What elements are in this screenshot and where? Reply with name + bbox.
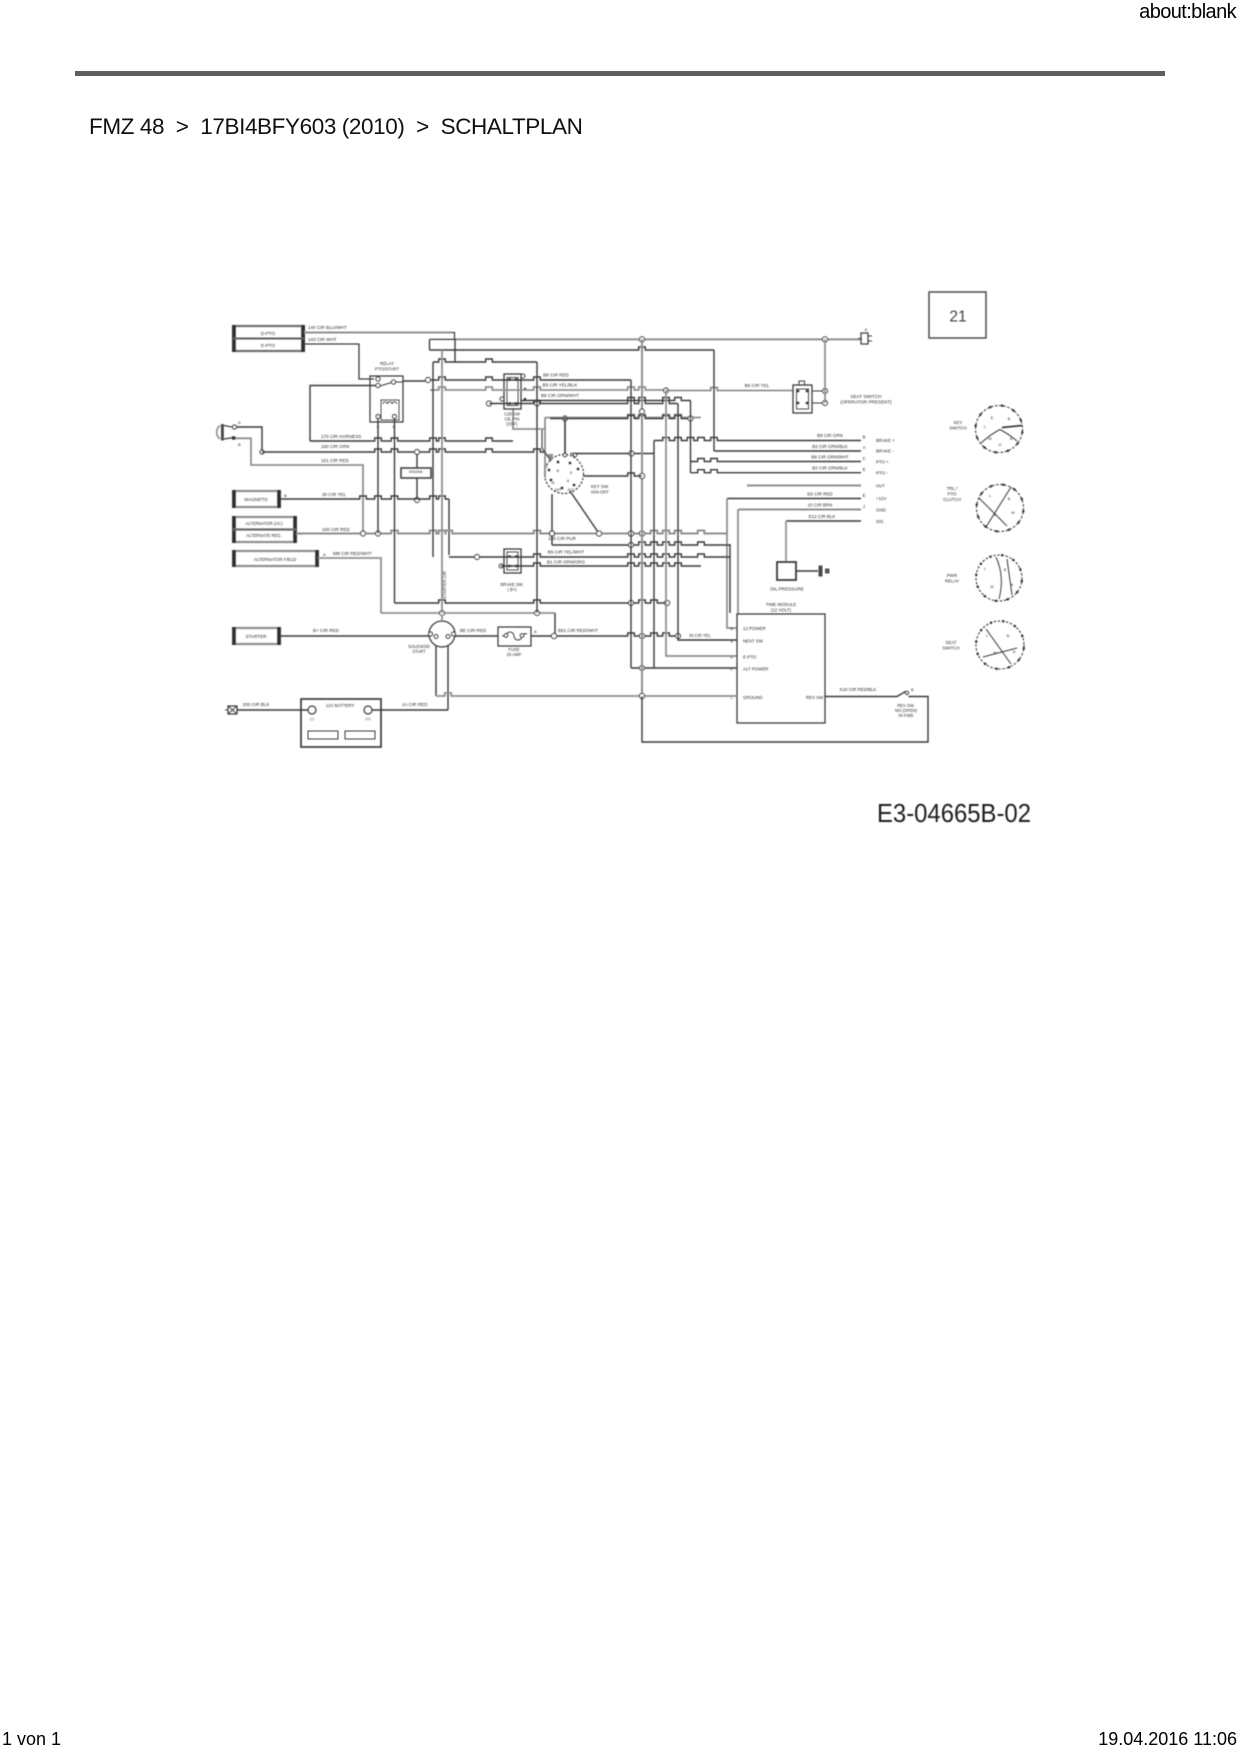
svg-text:A: A bbox=[865, 327, 868, 332]
svg-text:A: A bbox=[730, 639, 733, 644]
svg-text:(12 VOLT): (12 VOLT) bbox=[771, 608, 792, 613]
svg-text:D-PTO: D-PTO bbox=[261, 331, 276, 336]
svg-text:PTO -: PTO - bbox=[876, 471, 888, 476]
svg-text:A: A bbox=[1011, 583, 1014, 587]
svg-text:ALTERNATOR (AC): ALTERNATOR (AC) bbox=[245, 521, 283, 526]
svg-text:30 CIR YEL: 30 CIR YEL bbox=[322, 492, 347, 497]
svg-text:L: L bbox=[984, 425, 986, 429]
svg-text:A: A bbox=[1013, 650, 1016, 654]
svg-text:B51 CIR RED/WHT: B51 CIR RED/WHT bbox=[558, 628, 598, 633]
svg-text:OFF: OFF bbox=[555, 488, 562, 492]
svg-text:B+ CIR RED: B+ CIR RED bbox=[313, 628, 340, 633]
svg-text:B: B bbox=[557, 469, 560, 473]
svg-text:S: S bbox=[570, 471, 573, 475]
svg-text:B2 CIR GRN/BLK: B2 CIR GRN/BLK bbox=[812, 444, 848, 449]
svg-text:161 CIR RED: 161 CIR RED bbox=[321, 458, 350, 463]
svg-text:M: M bbox=[990, 585, 993, 589]
svg-text:BE CIR RED: BE CIR RED bbox=[460, 628, 487, 633]
svg-text:12 POWER: 12 POWER bbox=[743, 626, 766, 631]
svg-text:J: J bbox=[863, 504, 865, 509]
svg-text:E12 CIR BLK: E12 CIR BLK bbox=[809, 514, 836, 519]
svg-text:140 CIR BLU/WHT: 140 CIR BLU/WHT bbox=[308, 325, 347, 330]
svg-text:D: D bbox=[730, 655, 733, 660]
svg-text:B8 CIR GRN: B8 CIR GRN bbox=[817, 433, 843, 438]
svg-text:B: B bbox=[863, 435, 866, 440]
svg-text:10 CIR BRN: 10 CIR BRN bbox=[808, 503, 833, 508]
svg-text:PWR: PWR bbox=[947, 573, 957, 578]
svg-text:C: C bbox=[730, 667, 733, 672]
svg-text:NEXT SW: NEXT SW bbox=[743, 639, 764, 644]
svg-text:RELAY: RELAY bbox=[380, 361, 394, 366]
svg-text:E-PTO: E-PTO bbox=[743, 655, 757, 660]
svg-text:12V BATTERY: 12V BATTERY bbox=[326, 703, 355, 708]
svg-text:B: B bbox=[730, 626, 733, 631]
svg-text:B8 CIR GRN/WHT: B8 CIR GRN/WHT bbox=[541, 393, 579, 398]
svg-text:A: A bbox=[994, 513, 997, 517]
svg-text:A: A bbox=[238, 420, 241, 425]
svg-text:SEAT: SEAT bbox=[945, 640, 956, 645]
svg-text:ACC: ACC bbox=[568, 488, 576, 492]
svg-text:B: B bbox=[1007, 634, 1010, 638]
svg-text:GROUND: GROUND bbox=[743, 695, 763, 700]
svg-text:SWITCH: SWITCH bbox=[942, 646, 959, 651]
svg-text:HVT: HVT bbox=[876, 484, 885, 489]
svg-text:K10 CIR RED/BLK: K10 CIR RED/BLK bbox=[840, 687, 877, 692]
svg-text:START: START bbox=[412, 649, 426, 654]
svg-text:L: L bbox=[986, 634, 988, 638]
svg-text:E: E bbox=[863, 467, 866, 472]
svg-text:OIL PRESSURE: OIL PRESSURE bbox=[770, 587, 804, 592]
svg-text:B5 CIR YEL/WHT: B5 CIR YEL/WHT bbox=[548, 550, 585, 555]
svg-text:PTO: PTO bbox=[948, 492, 958, 497]
svg-text:PTO +: PTO + bbox=[876, 460, 889, 465]
svg-text:IN CIR YEL: IN CIR YEL bbox=[689, 633, 711, 638]
svg-text:B6 CIR YEL: B6 CIR YEL bbox=[745, 383, 770, 388]
svg-text:CLUTCH: CLUTCH bbox=[943, 497, 961, 502]
svg-text:200 CIR BLK: 200 CIR BLK bbox=[243, 702, 271, 707]
svg-text:(OPERATOR PRESENT): (OPERATOR PRESENT) bbox=[840, 400, 892, 405]
svg-text:( B+): ( B+) bbox=[507, 587, 517, 592]
svg-text:KEY: KEY bbox=[954, 420, 963, 425]
svg-text:IGN-OFF: IGN-OFF bbox=[591, 490, 609, 495]
svg-text:SWITCH: SWITCH bbox=[949, 426, 966, 431]
svg-text:21: 21 bbox=[949, 309, 966, 326]
svg-text:B: B bbox=[284, 493, 287, 498]
svg-text:A: A bbox=[323, 552, 326, 557]
svg-text:M: M bbox=[552, 481, 555, 485]
svg-text:B: B bbox=[1004, 568, 1007, 572]
svg-text:C: C bbox=[862, 456, 865, 461]
svg-text:A: A bbox=[1010, 437, 1013, 441]
svg-text:ALTERNATOR FIELD: ALTERNATOR FIELD bbox=[254, 557, 296, 562]
svg-text:TRL /: TRL / bbox=[947, 486, 958, 491]
svg-text:B: B bbox=[238, 442, 241, 447]
svg-text:+12V: +12V bbox=[876, 496, 886, 501]
svg-text:A: A bbox=[863, 445, 866, 450]
svg-text:20 AMP: 20 AMP bbox=[507, 652, 522, 657]
svg-text:B: B bbox=[911, 687, 914, 692]
svg-text:B1 CIR GRN/ORG: B1 CIR GRN/ORG bbox=[547, 560, 585, 565]
svg-text:E: E bbox=[991, 416, 994, 420]
svg-text:170 CIR HARNESS: 170 CIR HARNESS bbox=[321, 434, 361, 439]
svg-text:L: L bbox=[984, 567, 986, 571]
svg-text:MAGNETO: MAGNETO bbox=[244, 497, 268, 502]
svg-text:L: L bbox=[546, 464, 548, 468]
svg-text:B: B bbox=[1008, 497, 1011, 501]
svg-text:B8 CIR RED: B8 CIR RED bbox=[543, 373, 569, 378]
svg-text:(OFF): (OFF) bbox=[506, 422, 518, 427]
svg-text:M: M bbox=[993, 651, 996, 655]
svg-text:(-): (-) bbox=[310, 717, 315, 721]
svg-text:E-PTO: E-PTO bbox=[261, 343, 275, 348]
svg-text:U: U bbox=[999, 443, 1002, 447]
svg-text:ALT POWER: ALT POWER bbox=[743, 667, 768, 672]
svg-text:PTO/START: PTO/START bbox=[375, 367, 399, 372]
svg-text:1A CIR RED: 1A CIR RED bbox=[402, 702, 428, 707]
svg-text:E3-04665B-02: E3-04665B-02 bbox=[877, 798, 1031, 828]
svg-text:B8 CIR GRN/WHT: B8 CIR GRN/WHT bbox=[811, 455, 849, 460]
svg-text:GND: GND bbox=[876, 508, 886, 513]
svg-text:A: A bbox=[567, 479, 570, 483]
svg-text:ALTERNATE REG.: ALTERNATE REG. bbox=[246, 533, 281, 538]
svg-text:SIG: SIG bbox=[876, 519, 884, 524]
svg-text:E: E bbox=[863, 493, 866, 498]
svg-text:IN FWD: IN FWD bbox=[899, 713, 914, 718]
svg-text:100 CIR RED: 100 CIR RED bbox=[322, 527, 351, 532]
svg-text:A: A bbox=[534, 629, 537, 634]
svg-text:SEAT SWITCH: SEAT SWITCH bbox=[851, 394, 882, 399]
svg-text:RELAY: RELAY bbox=[945, 579, 959, 584]
svg-text:BRAKE -: BRAKE - bbox=[876, 449, 894, 454]
svg-text:B5 CIR YEL/BLK: B5 CIR YEL/BLK bbox=[543, 383, 579, 388]
svg-text:STARTER: STARTER bbox=[245, 634, 267, 639]
svg-text:160 CIR GRN: 160 CIR GRN bbox=[321, 444, 349, 449]
svg-text:L: L bbox=[989, 494, 991, 498]
svg-text:BRAKE +: BRAKE + bbox=[876, 438, 895, 443]
svg-text:MB CIR RED/WHT: MB CIR RED/WHT bbox=[333, 551, 372, 556]
svg-text:KEY SW.: KEY SW. bbox=[591, 484, 609, 489]
svg-text:143 CIR WHT: 143 CIR WHT bbox=[308, 337, 337, 342]
svg-text:ENGINE: ENGINE bbox=[409, 470, 423, 474]
svg-text:E6 CIR RED: E6 CIR RED bbox=[807, 492, 833, 497]
svg-text:B: B bbox=[1008, 417, 1011, 421]
svg-text:B2 CIR GRN/BLK: B2 CIR GRN/BLK bbox=[812, 466, 848, 471]
svg-text:TIME MODULE: TIME MODULE bbox=[766, 602, 797, 607]
svg-text:M: M bbox=[988, 437, 991, 441]
svg-text:(+): (+) bbox=[366, 717, 371, 721]
svg-text:M: M bbox=[1011, 511, 1014, 515]
svg-text:REV SW: REV SW bbox=[806, 695, 824, 700]
